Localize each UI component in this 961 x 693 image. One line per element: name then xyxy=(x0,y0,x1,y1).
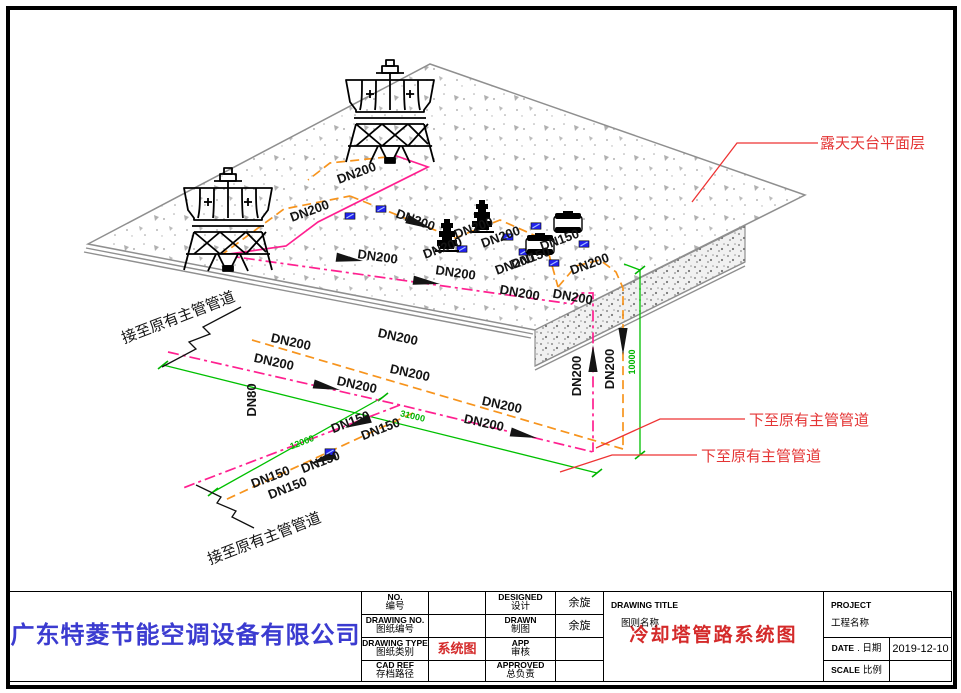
company-cell: 广东特菱节能空调设备有限公司 xyxy=(9,591,362,682)
roof-level-label: 露天天台平面层 xyxy=(820,135,925,152)
pipe-break-symbols xyxy=(162,307,254,528)
drawing-no-value-cell xyxy=(428,614,486,638)
pipe-size-label: DN200 xyxy=(377,325,420,348)
drawing-type-value-cell: 系统图 xyxy=(428,637,486,661)
pipe-size-label: DN80 xyxy=(244,383,259,416)
drawing-title-cell: DRAWING TITLE 图则名称 冷却塔管路系统图 xyxy=(603,591,824,682)
scale-label-cell: SCALE 比例 xyxy=(823,660,890,682)
drawing-type-label-cell: DRAWING TYPE 图纸类别 xyxy=(361,637,429,661)
date-value-cell: 2019-12-10 xyxy=(889,637,952,661)
no-value-cell xyxy=(428,591,486,615)
scale-value-cell xyxy=(889,660,952,682)
dimension-label: 31000 xyxy=(399,408,426,423)
drawn-label-cell: DRAWN 制图 xyxy=(485,614,556,638)
drawing-no-label-cell: DRAWING NO. 图纸编号 xyxy=(361,614,429,638)
drawn-name-cell: 余旋 xyxy=(555,614,604,638)
approved-name-cell xyxy=(555,660,604,682)
pipe-size-label: DN150 xyxy=(299,448,342,477)
cad-ref-value-cell xyxy=(428,660,486,682)
pipe-size-label: DN200 xyxy=(336,373,379,396)
pipe-size-label: DN200 xyxy=(389,361,432,384)
no-label-cell: NO. 编号 xyxy=(361,591,429,615)
app-label-cell: APP 审核 xyxy=(485,637,556,661)
cad-sheet: 露天天台平面层 下至原有主管管道 下至原有主管管道 接至原有主管管道 接至原有主… xyxy=(0,0,961,693)
date-label-cell: DATE . 日期 xyxy=(823,637,890,661)
title-block: 广东特菱节能空调设备有限公司 NO. 编号 DESIGNED 设计 余旋 DRA… xyxy=(9,591,952,682)
company-name: 广东特菱节能空调设备有限公司 xyxy=(11,623,361,649)
rooftop-platform xyxy=(84,64,805,338)
designed-name-cell: 余旋 xyxy=(555,591,604,615)
connect-main-label-lower: 接至原有主管管道 xyxy=(205,509,323,568)
system-diagram: 露天天台平面层 下至原有主管管道 下至原有主管管道 接至原有主管管道 接至原有主… xyxy=(0,0,961,591)
dimension-label: 12000 xyxy=(288,433,315,451)
app-name-cell xyxy=(555,637,604,661)
approved-label-cell: APPROVED 总负责 xyxy=(485,660,556,682)
down-to-main-label-2: 下至原有主管管道 xyxy=(701,448,821,465)
cad-ref-label-cell: CAD REF 存档路径 xyxy=(361,660,429,682)
pipe-size-label: DN200 xyxy=(569,356,584,396)
dimension-label: 10000 xyxy=(627,349,637,374)
down-to-main-label-1: 下至原有主管管道 xyxy=(749,412,869,429)
pipe-size-label: DN200 xyxy=(253,350,296,373)
designed-label-cell: DESIGNED 设计 xyxy=(485,591,556,615)
pipe-size-label: DN200 xyxy=(463,411,506,434)
pipe-size-label: DN200 xyxy=(270,330,313,353)
project-cell: PROJECT 工程名称 xyxy=(823,591,952,638)
dimension-labels-layer: 120003100010000 xyxy=(288,349,637,451)
pipe-size-label: DN200 xyxy=(602,349,617,389)
